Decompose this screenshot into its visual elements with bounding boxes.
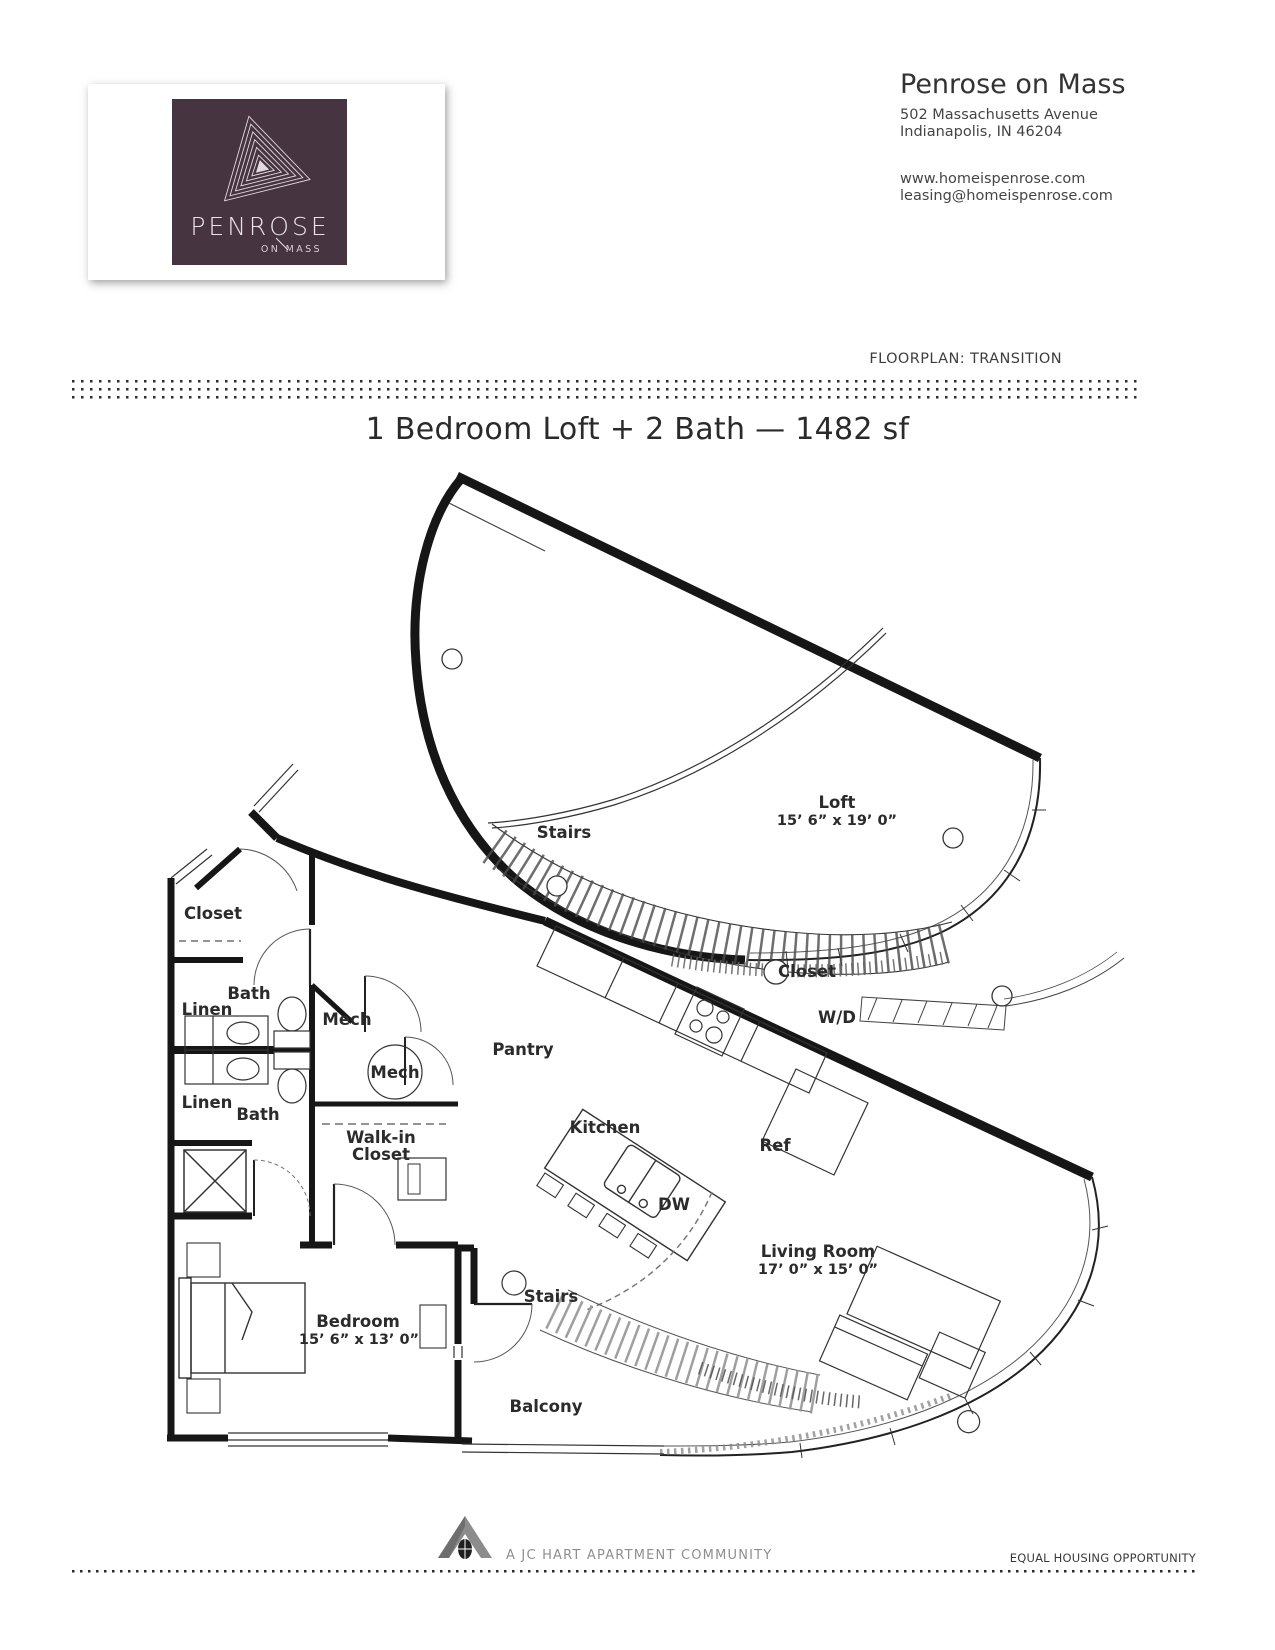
loft-outer-wall bbox=[415, 479, 745, 960]
refrigerator bbox=[762, 1069, 868, 1175]
community-credit: A JC HART APARTMENT COMMUNITY bbox=[506, 1548, 772, 1563]
label-living: Living Room bbox=[761, 1242, 875, 1261]
label-linen-2: Linen bbox=[182, 1093, 233, 1112]
label-loft: Loft bbox=[819, 793, 856, 812]
label-living-dims: 17’ 0” x 15’ 0” bbox=[758, 1262, 878, 1278]
shower bbox=[184, 1150, 246, 1212]
label-stairs-lower: Stairs bbox=[524, 1287, 579, 1306]
label-ref: Ref bbox=[759, 1136, 791, 1155]
label-bath-1: Bath bbox=[227, 984, 270, 1003]
floorplan-sheet: PENROSE ON MASS Penrose on Mass 502 Mass… bbox=[0, 0, 1275, 1650]
label-linen-1: Linen bbox=[182, 1000, 233, 1019]
bedroom-window bbox=[228, 1346, 462, 1446]
label-bedroom: Bedroom bbox=[316, 1312, 400, 1331]
label-mech-2: Mech bbox=[370, 1063, 419, 1082]
floorplan-drawing: Loft 15’ 6” x 19’ 0” Stairs Closet W/D C… bbox=[0, 0, 1275, 1650]
bed bbox=[179, 1243, 446, 1413]
label-stairs-upper: Stairs bbox=[537, 823, 592, 842]
stool bbox=[568, 1193, 595, 1218]
label-bedroom-dims: 15’ 6” x 13’ 0” bbox=[299, 1332, 419, 1348]
stool bbox=[599, 1213, 626, 1238]
loft-right-wall bbox=[457, 476, 1040, 758]
equal-housing-notice: EQUAL HOUSING OPPORTUNITY bbox=[896, 1551, 1196, 1565]
label-closet-upper: Closet bbox=[778, 962, 836, 981]
balcony-door bbox=[474, 1304, 532, 1362]
label-kitchen: Kitchen bbox=[570, 1118, 641, 1137]
label-dw: DW bbox=[658, 1195, 690, 1214]
loft-level bbox=[415, 476, 1124, 1030]
label-bath-2: Bath bbox=[236, 1105, 279, 1124]
label-wd: W/D bbox=[818, 1008, 856, 1027]
dotted-divider-bottom bbox=[72, 1570, 1200, 1573]
entry-door bbox=[171, 764, 298, 891]
label-pantry: Pantry bbox=[492, 1040, 554, 1059]
label-walkin-2: Closet bbox=[352, 1145, 410, 1164]
label-mech-1: Mech bbox=[322, 1010, 371, 1029]
main-level bbox=[167, 764, 1108, 1458]
balcony bbox=[462, 1304, 664, 1454]
living-glass-wall bbox=[660, 1177, 1108, 1458]
jchart-house-icon bbox=[436, 1512, 494, 1568]
stool bbox=[537, 1173, 564, 1198]
hall-door bbox=[254, 1160, 310, 1216]
loft-stairs bbox=[492, 824, 952, 974]
bath-door bbox=[254, 929, 310, 985]
stool bbox=[630, 1234, 657, 1259]
label-closet-left: Closet bbox=[184, 904, 242, 923]
label-balcony: Balcony bbox=[510, 1397, 583, 1416]
loft-glass-wall bbox=[748, 758, 1040, 960]
label-loft-dims: 15’ 6” x 19’ 0” bbox=[777, 813, 897, 829]
